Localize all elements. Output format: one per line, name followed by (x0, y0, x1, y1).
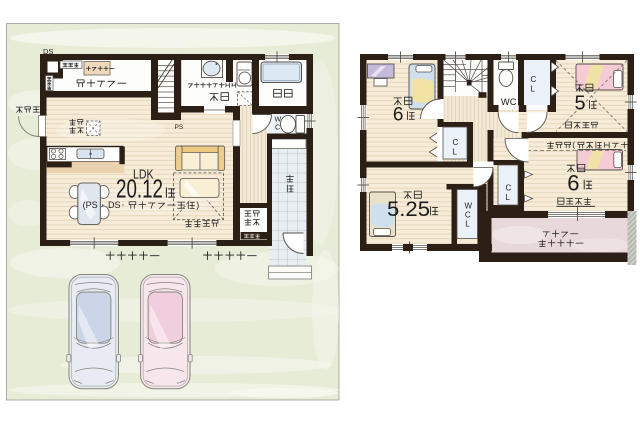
svg-text:(: ( (572, 141, 575, 150)
svg-text:DS: DS (108, 200, 121, 210)
svg-text:L: L (531, 85, 536, 94)
svg-text:L: L (506, 193, 511, 202)
svg-text:6: 6 (393, 105, 404, 126)
svg-text:C: C (453, 138, 459, 147)
svg-text:C: C (531, 75, 537, 84)
svg-text:DS: DS (43, 47, 53, 56)
svg-text:5.25: 5.25 (387, 198, 430, 221)
svg-text:W: W (275, 117, 282, 124)
svg-text:5: 5 (575, 93, 586, 115)
svg-text:C: C (275, 125, 280, 132)
svg-text:(PS: (PS (83, 200, 98, 210)
svg-text:C: C (506, 184, 512, 193)
svg-text:6: 6 (567, 171, 579, 196)
svg-text:): ) (196, 200, 199, 210)
svg-text:W: W (465, 202, 473, 211)
svg-text:20.12: 20.12 (116, 174, 163, 204)
svg-text:L: L (465, 220, 470, 229)
svg-text:PS: PS (175, 124, 184, 131)
svg-text:C: C (465, 211, 471, 220)
svg-text:L: L (453, 148, 458, 157)
svg-text:WC: WC (501, 97, 517, 108)
